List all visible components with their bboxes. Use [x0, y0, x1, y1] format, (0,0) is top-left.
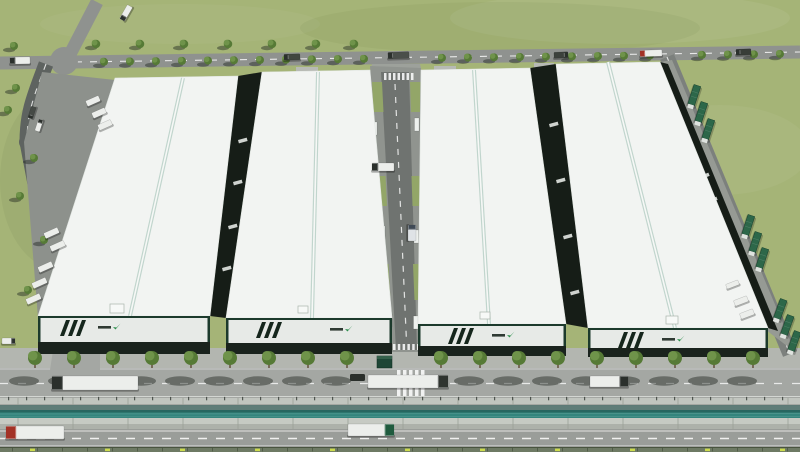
truck [553, 52, 569, 60]
hedge-marker [30, 449, 35, 452]
dock-canopy [415, 118, 420, 131]
truck [387, 52, 410, 61]
warehouse-3-logo-text [492, 334, 505, 337]
hedge-marker [630, 449, 635, 452]
corridor-lawn [410, 82, 420, 112]
truck [5, 426, 65, 441]
warehouse-4-logo-text [662, 338, 675, 341]
truck [735, 49, 752, 57]
parked-car [350, 374, 365, 381]
rooftop-unit [666, 316, 678, 324]
truck [589, 376, 629, 389]
hedge-marker [255, 449, 260, 452]
truck [367, 375, 449, 390]
warehouse-4-facade [588, 328, 768, 350]
truck [51, 376, 139, 392]
rooftop-unit [110, 304, 124, 313]
hedge-marker [180, 449, 185, 452]
canal-wall-top [0, 398, 800, 405]
industrial-park-rendering [0, 0, 800, 452]
warehouse-2-facade [226, 318, 392, 345]
hedge-marker [405, 449, 410, 452]
corridor-lawn [372, 82, 384, 112]
hedge-marker [480, 449, 485, 452]
canal-wall-face [0, 424, 800, 429]
truck [406, 224, 416, 242]
canal-wall-shade [0, 405, 800, 410]
hedge-marker [105, 449, 110, 452]
hedge-marker [705, 449, 710, 452]
rooftop-unit [480, 312, 490, 319]
warehouse-1-logo-text [98, 326, 111, 329]
front-bands [0, 348, 800, 452]
truck [347, 424, 395, 438]
corridor-lawn [412, 176, 421, 206]
truck [9, 57, 31, 66]
truck [1, 338, 16, 346]
hedge-marker [780, 449, 785, 452]
dock-canopy [414, 316, 419, 329]
warehouse-2-logo-text [330, 328, 343, 331]
hedge-marker [330, 449, 335, 452]
road-intersection [50, 47, 78, 75]
scene-svg [0, 0, 800, 452]
truck [371, 163, 395, 173]
truck [283, 54, 301, 62]
warehouse-1-dock-base [38, 342, 210, 354]
canal-near-wall [0, 418, 800, 424]
hedge-marker [555, 449, 560, 452]
truck [639, 50, 663, 59]
rooftop-unit [298, 306, 308, 313]
